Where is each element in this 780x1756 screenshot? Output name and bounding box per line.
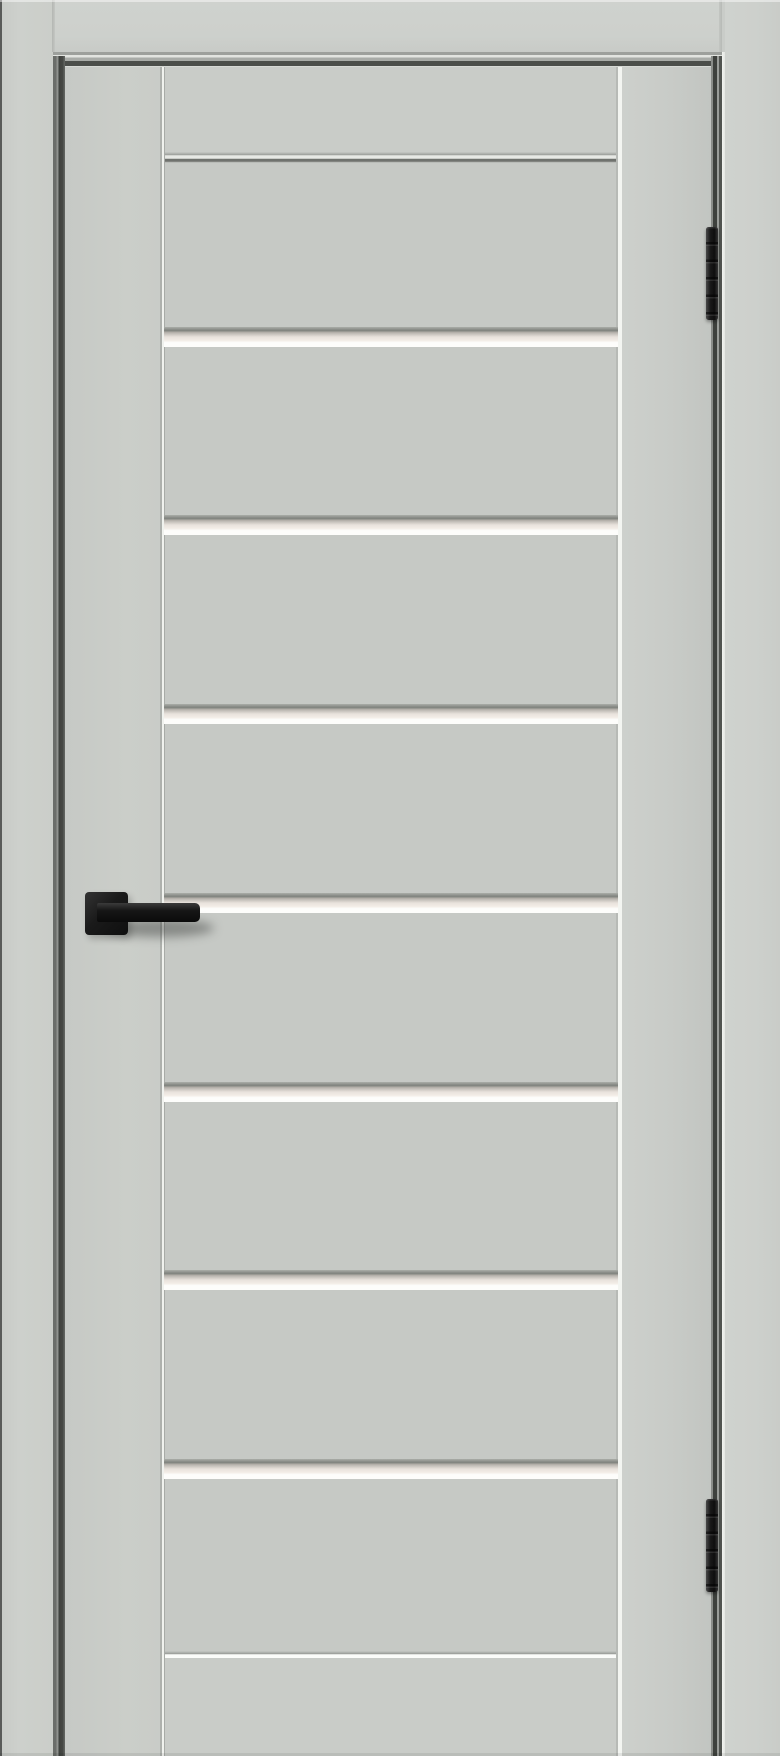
glass-stripe [164,515,618,535]
glass-stripe [164,1459,618,1479]
door-handle-lever [97,903,200,922]
hinge [706,227,718,320]
leaf-top-rail [165,67,616,152]
leaf-bottom-rail [165,1658,616,1756]
leaf-top-rail-seam [165,152,616,163]
frame-casing-left [0,0,53,1756]
frame-jamb-highlight [722,52,725,1756]
glass-stripe [164,893,618,913]
photo-edge-top [0,0,780,2]
frame-header-seam-right [719,0,722,52]
door-gap-left [53,56,65,1756]
leaf-bottom-rail-seam [165,1651,616,1658]
glass-stripe [164,327,618,347]
glass-stripe [164,1082,618,1102]
leaf-stile-right [622,67,711,1756]
glass-stripe [164,1270,618,1290]
door-product-photo [0,0,780,1756]
frame-casing-right [725,0,780,1756]
frame-casing-header [53,0,722,52]
frame-header-seam-left [52,0,55,52]
door-gap-top [53,52,722,67]
hinge [706,1499,718,1592]
photo-edge-left [0,0,2,1756]
glass-stripe [164,704,618,724]
